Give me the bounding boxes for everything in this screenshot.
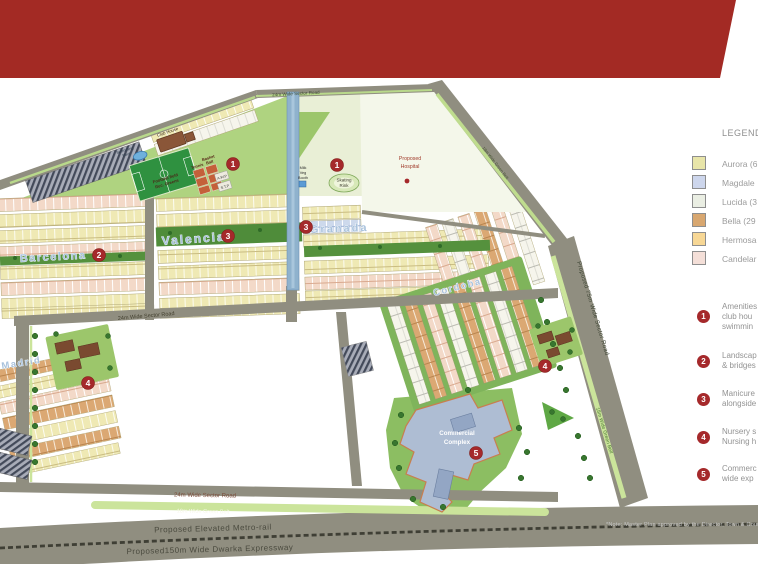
svg-text:Veg: Veg [300, 171, 307, 175]
green-belt-bottom [95, 505, 545, 512]
svg-text:1: 1 [335, 160, 340, 170]
svg-text:1: 1 [231, 159, 236, 169]
approval-footnote: *Note: Master Plan approved by the Direc… [606, 522, 758, 528]
legend-note-3: Manicurealongside [722, 389, 756, 409]
svg-text:5: 5 [474, 448, 479, 458]
legend-note-3-badge: 3 [697, 393, 710, 406]
header-banner [0, 0, 758, 80]
water-canal [287, 92, 299, 290]
road-label-belt-bottom: 18m Wide Green Belt [177, 509, 230, 516]
legend-note-2-badge: 2 [697, 355, 710, 368]
hospital-dot [405, 179, 410, 184]
site-plan-map: Football field Rec. Greens Club House Sw… [0, 0, 758, 564]
svg-text:Hospital: Hospital [401, 164, 420, 170]
legend-note-5: Commercwide exp [722, 464, 757, 484]
road-canal-south [286, 286, 297, 322]
marker-1a: 1 [227, 158, 240, 171]
marker-3a: 3 [222, 230, 235, 243]
marker-5: 5 [470, 447, 483, 460]
commercial-label-1: Commercial [439, 430, 475, 437]
legend-note-5-badge: 5 [697, 468, 710, 481]
legend-label-hermosa: Hermosa [722, 235, 756, 245]
svg-text:4: 4 [86, 378, 91, 388]
svg-text:Milk: Milk [300, 166, 307, 170]
legend-swatch-magdalena [692, 175, 706, 189]
legend-note-2: Landscap& bridges [722, 351, 757, 371]
road-expressway [0, 505, 758, 564]
header-band [0, 0, 736, 78]
marker-3b: 3 [300, 221, 313, 234]
legend-note-4-badge: 4 [697, 431, 710, 444]
marker-4b: 4 [539, 360, 552, 373]
legend-note-1: Amenitiesclub houswimmin [722, 302, 757, 332]
marker-1b: 1 [331, 159, 344, 172]
legend-note-4: Nursery sNursing h [722, 427, 756, 447]
marker-4a: 4 [82, 377, 95, 390]
commercial-label-2: Complex [444, 439, 471, 446]
legend-label-magdalena: Magdale [722, 178, 755, 188]
svg-text:Rink: Rink [339, 183, 349, 188]
label-granada: Granada [310, 222, 369, 236]
legend-swatch-lucida [692, 194, 706, 208]
legend-swatch-aurora [692, 156, 706, 170]
legend-note-1-badge: 1 [697, 310, 710, 323]
svg-text:Booth: Booth [298, 176, 308, 180]
legend-title: LEGEND [722, 128, 758, 138]
svg-text:Skating: Skating [336, 178, 352, 183]
district-valencia-plots [156, 194, 300, 319]
legend-label-bella: Bella (29 [722, 216, 756, 226]
legend-label-candelara: Candelar [722, 254, 757, 264]
svg-text:3: 3 [226, 231, 231, 241]
skating-rink: Skating Rink [329, 174, 359, 192]
road-center-south [336, 312, 362, 486]
svg-text:4: 4 [543, 361, 548, 371]
road-vertical-west [145, 190, 154, 320]
legend-label-aurora: Aurora (6 [722, 159, 757, 169]
road-label-bottom: 24m Wide Sector Road [174, 492, 236, 499]
legend-swatch-hermosa [692, 232, 706, 246]
master-plan-page: Football field Rec. Greens Club House Sw… [0, 0, 758, 564]
legend-swatch-candelara [692, 251, 706, 265]
legend-swatch-bella [692, 213, 706, 227]
svg-text:Proposed: Proposed [399, 156, 421, 162]
marker-2: 2 [93, 249, 106, 262]
legend-label-lucida: Lucida (3 [722, 197, 757, 207]
road-right [548, 236, 648, 508]
svg-text:3: 3 [304, 222, 309, 232]
svg-text:2: 2 [97, 250, 102, 260]
